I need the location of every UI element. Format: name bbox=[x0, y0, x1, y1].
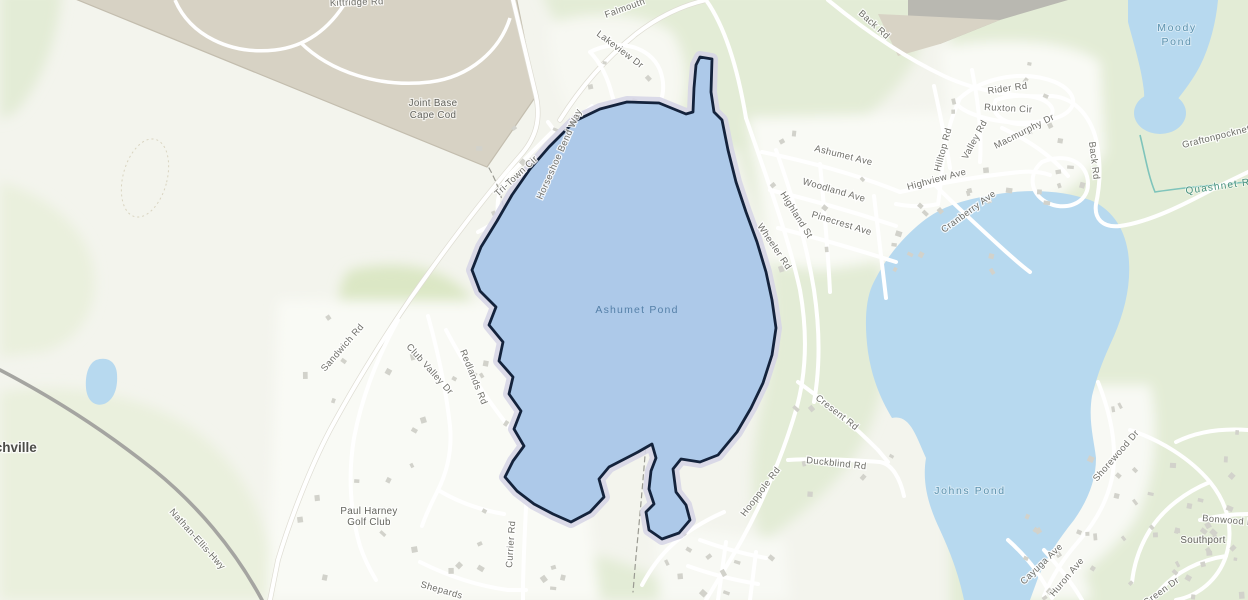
building-footprint bbox=[891, 243, 897, 247]
building-footprint bbox=[1191, 594, 1196, 599]
building-footprint bbox=[825, 247, 829, 253]
building-footprint bbox=[411, 546, 418, 553]
building-footprint bbox=[476, 146, 482, 151]
building-footprint bbox=[314, 495, 320, 501]
label-southport: Southport bbox=[1180, 535, 1225, 546]
building-footprint bbox=[1057, 138, 1063, 144]
label-moody-pond-2: Pond bbox=[1162, 36, 1193, 48]
building-footprint bbox=[792, 131, 797, 137]
building-footprint bbox=[303, 372, 308, 379]
building-footprint bbox=[1170, 463, 1176, 468]
label-paul-harney-2: Golf Club bbox=[347, 517, 391, 528]
topo-map-svg[interactable]: Kittridge Rd Falmouth Lakeview Dr Back R… bbox=[0, 0, 1248, 600]
building-footprint bbox=[1055, 169, 1061, 174]
building-footprint bbox=[1067, 165, 1074, 169]
building-footprint bbox=[483, 360, 489, 366]
building-footprint bbox=[1037, 189, 1042, 194]
building-footprint bbox=[1175, 528, 1180, 533]
map-canvas[interactable]: Kittridge Rd Falmouth Lakeview Dr Back R… bbox=[0, 0, 1248, 600]
label-hatchville: Hatchville bbox=[0, 440, 37, 455]
building-footprint bbox=[1239, 592, 1245, 599]
building-footprint bbox=[1224, 456, 1228, 462]
building-footprint bbox=[807, 491, 813, 497]
building-footprint bbox=[677, 573, 683, 579]
label-paul-harney-1: Paul Harney bbox=[340, 506, 397, 517]
label-moody-pond-1: Moody bbox=[1157, 22, 1197, 34]
small-pond-water bbox=[1134, 92, 1186, 134]
building-footprint bbox=[983, 167, 989, 173]
building-footprint bbox=[297, 517, 303, 523]
building-footprint bbox=[1006, 188, 1013, 194]
label-johns-pond: Johns Pond bbox=[934, 485, 1005, 497]
building-footprint bbox=[1153, 532, 1158, 537]
building-footprint bbox=[354, 479, 359, 483]
building-footprint bbox=[1186, 503, 1192, 509]
label-joint-base-1: Joint Base bbox=[409, 98, 458, 109]
label-ashumet-pond: Ashumet Pond bbox=[595, 304, 678, 316]
label-joint-base-2: Cape Cod bbox=[410, 110, 457, 121]
building-footprint bbox=[1206, 551, 1212, 556]
building-footprint bbox=[1085, 532, 1089, 536]
building-footprint bbox=[1235, 430, 1239, 435]
building-footprint bbox=[1233, 557, 1237, 561]
building-footprint bbox=[588, 84, 594, 90]
building-footprint bbox=[448, 568, 453, 574]
building-footprint bbox=[1093, 533, 1097, 540]
building-footprint bbox=[951, 110, 955, 114]
building-footprint bbox=[550, 586, 556, 590]
